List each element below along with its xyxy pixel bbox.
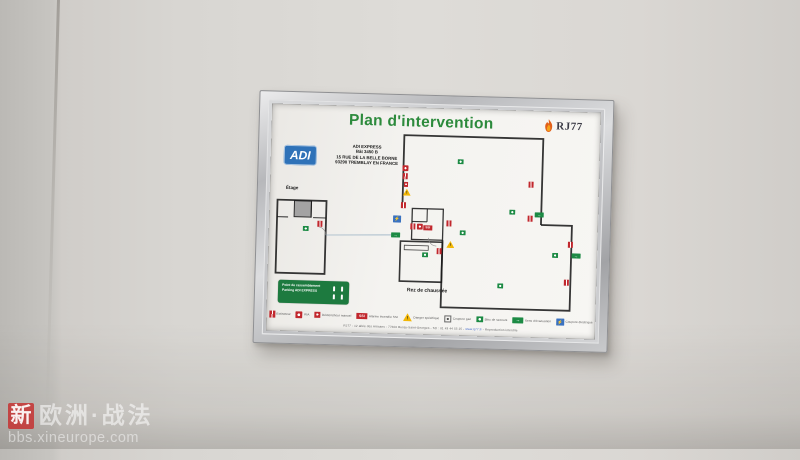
ssi-marker [423,225,432,230]
legend-label: Extincteur [276,312,290,316]
extinguisher-marker [403,173,408,179]
legend-item-ssi: Alarme incendie SSI [356,313,398,320]
intervention-plan-poster: Plan d'intervention RJ77 ADI ADI EXPRESS… [266,103,601,339]
watermark-site: bbs.xineurope.com [8,431,154,446]
ssi-icon [356,313,367,319]
assembly-point-icon [331,285,345,299]
legend-label: RIA [304,312,309,316]
legend-label: Sens d'évacuation [525,319,551,324]
footer-link: www.rj77.fr [465,327,482,331]
emergency-block-marker [509,210,515,215]
assembly-point-box: Point de rassemblement Parking ADI EXPRE… [278,280,350,305]
legend-item-emergency-block: Bloc de secours [476,316,508,323]
legend-item-manual-call-point: Déclencheur manuel [314,311,351,319]
extinguisher-marker [437,248,442,254]
assembly-line2: Parking ADI EXPRESS [282,288,328,295]
extinguisher-marker [446,220,451,226]
hose-reel-icon [296,311,303,318]
watermark-title: 欧洲·战法 [39,404,154,427]
watermark: 新 欧洲·战法 bbs.xineurope.com [8,403,154,446]
extinguisher-marker [401,202,406,208]
evacuation-direction-icon [512,317,523,323]
extinguisher-marker [410,223,415,229]
legend-item-gas-cutoff: Coupure gaz [444,315,471,323]
emergency-block-marker [497,283,503,288]
legend-item-extinguisher: Extincteur [269,310,291,318]
emergency-block-marker [422,252,428,257]
legend-item-evacuation-direction: Sens d'évacuation [512,317,551,324]
wall-corner-seam [44,0,60,460]
legend-label: Coupure gaz [453,317,471,322]
watermark-badge: 新 [8,403,34,429]
legend-label: Déclencheur manuel [322,313,351,318]
hose-reel-marker [417,224,423,230]
legend-item-electric-cutoff: Coupure électrique [556,318,593,326]
emergency-block-marker [303,226,309,231]
extinguisher-marker [528,216,533,222]
photo-of-wall: { "watermark": { "badge": "新", "title": … [0,0,800,449]
extinguisher-marker [568,242,573,248]
hose-reel-marker [402,165,408,171]
extinguisher-icon [269,310,275,317]
gas-cutoff-icon [444,315,451,322]
legend-label: Alarme incendie SSI [369,314,398,319]
emergency-block-icon [476,316,483,322]
extinguisher-marker [564,280,569,286]
legend-label: Coupure électrique [565,320,592,325]
emergency-block-marker [552,253,558,258]
danger-marker [446,241,454,248]
manual-call-point-marker [404,182,408,187]
legend-item-hose-reel: RIA [296,311,310,318]
manual-call-point-icon [314,311,320,318]
emergency-block-marker [458,159,464,164]
legend-label: Bloc de secours [485,317,508,322]
extinguisher-marker [528,182,533,188]
intervention-plan-frame: Plan d'intervention RJ77 ADI ADI EXPRESS… [253,90,615,353]
danger-icon [403,313,412,321]
exit-sign-marker [391,232,400,237]
exit-sign-marker [535,212,544,217]
electric-cutoff-icon [556,318,564,325]
extinguisher-marker [317,221,322,227]
legend-label: Danger spécifique [413,315,439,320]
electric-cutoff-marker [393,215,401,222]
legend-item-danger: Danger spécifique [403,313,440,322]
exit-sign-marker [572,253,581,258]
danger-marker [403,189,411,196]
plan-markers [266,103,601,339]
emergency-block-marker [460,230,466,235]
